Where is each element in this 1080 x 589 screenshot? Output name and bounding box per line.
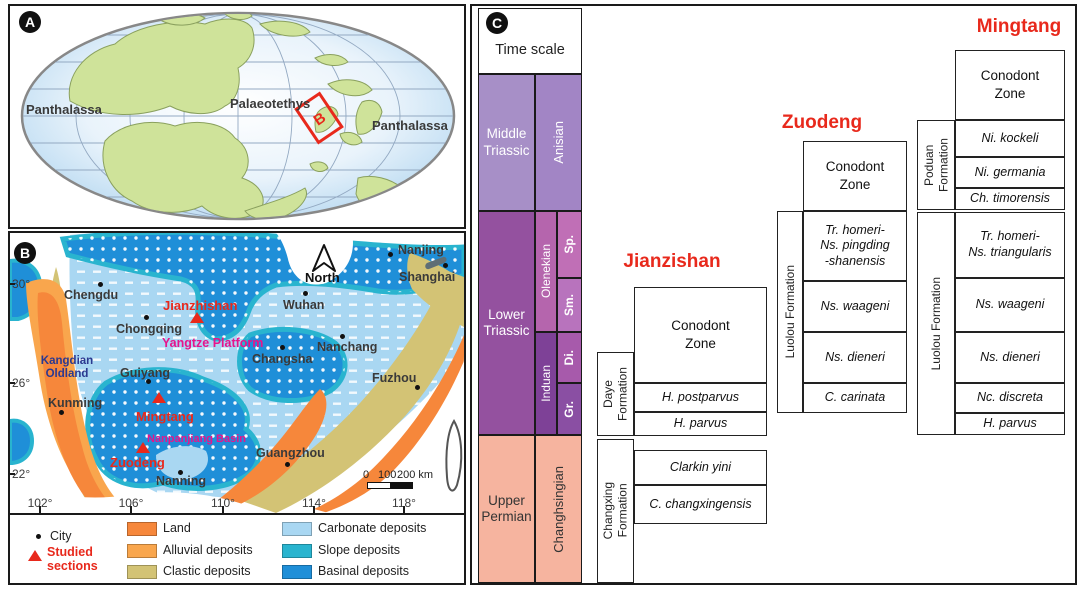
zone-h-parvus-mingtang-label: H. parvus <box>983 416 1037 432</box>
zone-ns-waageni-mingtang-label: Ns. waageni <box>976 297 1045 313</box>
zone-ch-timorensis: Ch. timorensis <box>955 188 1065 210</box>
period-upper-permian-label: Upper Permian <box>481 493 531 525</box>
daye-formation-label: Daye Formation <box>601 367 630 421</box>
zone-h-parvus-jianzishan: H. parvus <box>634 412 767 436</box>
ocean-label-left: Panthalassa <box>26 102 102 117</box>
zone-ns-dieneri-zuodeng-label: Ns. dieneri <box>825 350 885 366</box>
zone-c-carinata: C. carinata <box>803 383 907 413</box>
zone-homeri-pingdingshanensis-label: Tr. homeri- Ns. pingding -shanensis <box>820 223 890 270</box>
luolou-formation-mingtang-label: Luolou Formation <box>929 277 943 370</box>
zuodeng-conodont-zone-header: Conodont Zone <box>803 141 907 211</box>
luolou-formation-zuodeng-label: Luolou Formation <box>783 265 797 358</box>
zone-ns-waageni-zuodeng: Ns. waageni <box>803 281 907 332</box>
zuodeng-luolou-formation: Luolou Formation <box>777 211 803 413</box>
panel-b-badge: B <box>14 242 36 264</box>
zone-h-parvus-mingtang: H. parvus <box>955 413 1065 435</box>
stage-olenekian: Olenekian <box>535 211 557 332</box>
panel-b <box>8 231 466 585</box>
mingtang-conodont-zone-header-label: Conodont Zone <box>981 67 1040 102</box>
zone-homeri-triangularis: Tr. homeri- Ns. triangularis <box>955 212 1065 278</box>
substage-dienerian: Di. <box>557 332 582 383</box>
figure: B A Panthalassa Palaeotethys Panthalassa <box>0 0 1080 589</box>
mingtang-poduan-formation: Poduan Formation <box>917 120 955 210</box>
zone-nc-discreta-label: Nc. discreta <box>977 390 1043 406</box>
substage-smithian-label: Sm. <box>562 294 576 316</box>
zone-h-postparvus-label: H. postparvus <box>662 390 739 406</box>
period-lower-triassic-label: Lower Triassic <box>484 307 530 339</box>
legend-city-label: City <box>50 529 72 543</box>
zone-ni-kockeli: Ni. kockeli <box>955 120 1065 157</box>
changxing-formation-label: Changxing Formation <box>601 482 630 539</box>
stage-changhsingian-label: Changhsingian <box>551 466 567 553</box>
stage-olenekian-label: Olenekian <box>539 244 553 298</box>
legend-divider <box>8 513 466 515</box>
zone-ns-dieneri-zuodeng: Ns. dieneri <box>803 332 907 383</box>
scalebar-200km: 200 km <box>397 469 433 481</box>
zone-ns-dieneri-mingtang: Ns. dieneri <box>955 332 1065 383</box>
jianzishan-conodont-zone-header: Conodont Zone <box>634 287 767 383</box>
zone-h-postparvus: H. postparvus <box>634 383 767 412</box>
zuodeng-conodont-zone-header-label: Conodont Zone <box>826 158 885 193</box>
zone-c-changxingensis-label: C. changxingensis <box>649 497 751 513</box>
stage-anisian: Anisian <box>535 74 582 211</box>
stage-anisian-label: Anisian <box>551 121 567 164</box>
zone-ns-waageni-mingtang: Ns. waageni <box>955 278 1065 332</box>
substage-spathian-label: Sp. <box>562 235 576 254</box>
zone-h-parvus-jianzishan-label: H. parvus <box>674 416 728 432</box>
period-lower-triassic: Lower Triassic <box>478 211 535 435</box>
substage-smithian: Sm. <box>557 278 582 332</box>
zone-ni-germania-label: Ni. germania <box>975 165 1046 181</box>
scalebar-zero: 0 <box>363 469 369 481</box>
zone-ch-timorensis-label: Ch. timorensis <box>970 191 1050 207</box>
jianzishan-changxing-formation: Changxing Formation <box>597 439 634 583</box>
scale-bar <box>367 482 413 489</box>
stage-induan: Induan <box>535 332 557 435</box>
zone-homeri-triangularis-label: Tr. homeri- Ns. triangularis <box>968 229 1051 260</box>
scalebar-100: 100 <box>378 469 396 481</box>
zone-nc-discreta: Nc. discreta <box>955 383 1065 413</box>
jianzishan-conodont-zone-header-label: Conodont Zone <box>671 317 730 352</box>
section-title-zuodeng: Zuodeng <box>732 112 912 134</box>
section-title-mingtang: Mingtang <box>929 16 1080 38</box>
substage-griesbachian-label: Gr. <box>562 401 576 418</box>
stage-induan-label: Induan <box>539 365 553 402</box>
sea-label: Palaeotethys <box>230 96 310 111</box>
mingtang-luolou-formation: Luolou Formation <box>917 212 955 435</box>
zone-ni-kockeli-label: Ni. kockeli <box>982 131 1039 147</box>
ocean-label-right: Panthalassa <box>372 118 448 133</box>
panel-a-badge: A <box>19 11 41 33</box>
jianzishan-daye-formation: Daye Formation <box>597 352 634 436</box>
period-middle-triassic: Middle Triassic <box>478 74 535 211</box>
section-title-jianzishan: Jianzishan <box>582 251 762 273</box>
zone-ns-waageni-zuodeng-label: Ns. waageni <box>821 299 890 315</box>
panel-c-badge: C <box>486 12 508 34</box>
time-scale-title: Time scale <box>478 42 582 58</box>
period-middle-triassic-label: Middle Triassic <box>484 126 530 158</box>
substage-spathian: Sp. <box>557 211 582 278</box>
zone-ni-germania: Ni. germania <box>955 157 1065 188</box>
regional-deposits-map <box>10 233 464 583</box>
substage-griesbachian: Gr. <box>557 383 582 435</box>
mingtang-conodont-zone-header: Conodont Zone <box>955 50 1065 120</box>
substage-dienerian-label: Di. <box>562 350 576 365</box>
zone-clarkin-yini: Clarkin yini <box>634 450 767 485</box>
zone-homeri-pingdingshanensis: Tr. homeri- Ns. pingding -shanensis <box>803 211 907 281</box>
north-label: North <box>305 270 340 285</box>
stage-changhsingian: Changhsingian <box>535 435 582 583</box>
zone-clarkin-yini-label: Clarkin yini <box>670 460 731 476</box>
zone-c-changxingensis: C. changxingensis <box>634 485 767 524</box>
zone-ns-dieneri-mingtang-label: Ns. dieneri <box>980 350 1040 366</box>
legend-studied-marker <box>28 550 42 561</box>
zone-c-carinata-label: C. carinata <box>825 390 885 406</box>
poduan-formation-label: Poduan Formation <box>922 138 951 192</box>
legend-city-dot <box>36 534 41 539</box>
legend-studied-label: Studied sections <box>47 546 98 574</box>
period-upper-permian: Upper Permian <box>478 435 535 583</box>
